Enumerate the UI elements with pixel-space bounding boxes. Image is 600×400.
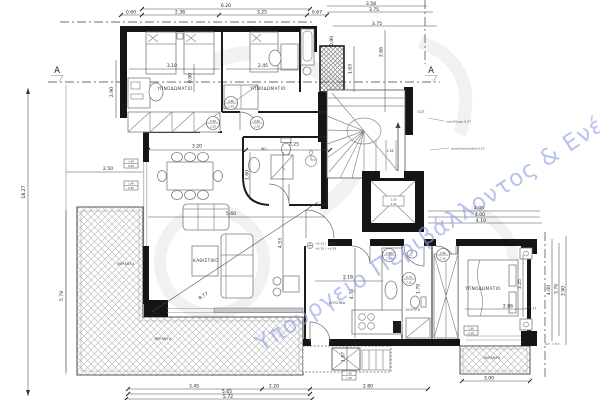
svg-text:1.40: 1.40 [128,160,134,164]
svg-text:0.90: 0.90 [228,99,234,103]
room-label-living: ΚΑΘΙΣΤΙΚΟ [193,258,219,263]
dim-right-017: 0.17 [530,307,537,311]
bedroom2-furniture [224,32,298,109]
door-tag: 0.752.10 [403,273,416,286]
window-tag: 1.400.90 [124,159,138,168]
dim-i-027: 0.27 [418,110,425,114]
elevator-tag: 1.20 2.20 [383,196,404,206]
dim-top-375a: 3.75 [369,7,379,13]
svg-text:1.10: 1.10 [346,376,352,380]
svg-text:0.90: 0.90 [440,251,446,255]
room-label-wc: WC [261,147,268,151]
svg-text:0.90: 0.90 [210,119,216,123]
door-tag: 0.902.20 [251,117,264,130]
svg-text:2.20: 2.20 [254,124,260,128]
dim-i-090a: 0.90 [188,73,194,83]
svg-text:1.40: 1.40 [128,182,134,186]
room-label-bedroom2: ΥΠΝΟΔΩΜΑΤΙΟ [249,86,286,91]
dim-i-090b: 0.90 [329,36,335,46]
dim-bottom-280: 2.80 [363,384,373,390]
dim-i-325b: 3.25 [517,279,523,289]
dim-i-167: 1.67 [341,352,347,362]
dim-left-290: 2.90 [109,87,115,97]
wheelchair-icon [306,151,317,167]
room-label-bedroom1: ΥΠΝΟΔΩΜΑΤΙΟ [156,86,193,91]
svg-text:0.90: 0.90 [128,186,134,190]
dim-i-453: 4.53 [278,238,284,248]
elevator-tag-h: 2.20 [391,202,397,206]
wc-fixtures [249,138,317,179]
dim-top-325: 3.25 [257,10,267,16]
dim-right-376: 3.76 [554,284,560,294]
dim-bottom-220: 2.20 [269,384,279,390]
level-mark: +6.15 / +6.25 +6.10 / +6.28 [307,242,336,251]
dim-bottom-300: 3.00 [484,376,494,382]
svg-text:0.75: 0.75 [406,275,412,279]
room-label-bedroom3: ΥΠΝΟΔΩΜΑΤΙΟ [464,286,501,291]
elevator: 1.20 2.20 [362,171,424,232]
window-tag: 1.601.10 [464,326,478,335]
dim-i-310: 3.10 [167,63,177,69]
dim-top-067: 0.67 [312,10,322,16]
floor-plan: 1.20 2.20 6.20 0.60 2.38 3.25 0.67 3.58 … [0,0,600,400]
dim-left-1827: 18.27 [21,185,27,198]
svg-text:0.90: 0.90 [254,119,260,123]
bedroom3-furniture [434,248,532,338]
dim-i-286: 2.86 [503,304,513,310]
dim-left-250: 2.50 [103,166,113,172]
elevator-tag-w: 1.20 [391,198,397,202]
dim-i-245: 2.45 [258,63,268,69]
room-label-veranda-right: ΒΕΡΑΝΤΑ [483,356,501,360]
svg-text:2.20: 2.20 [210,124,216,128]
svg-text:2.20: 2.20 [228,104,234,108]
dining-table [158,153,223,200]
section-marker-right: A [428,66,434,76]
dim-i-877: 8.77 [198,291,210,302]
dim-i-170: 1.70 [416,284,422,294]
svg-text:1.40: 1.40 [346,372,352,376]
level-1: +6.15 / +6.25 [315,242,336,246]
svg-text:2.10: 2.10 [440,256,446,260]
floor-plan-svg: 1.20 2.20 6.20 0.60 2.38 3.25 0.67 3.58 … [0,0,600,400]
dim-top-238: 2.38 [175,10,185,16]
window-tag: 1.401.10 [342,371,356,380]
window-tag: 1.400.90 [124,181,138,190]
room-label-veranda-bottom: ΒΕΡΑΝΤΑ [154,337,172,341]
door-tag: 0.902.20 [207,117,220,130]
veranda-right [460,346,530,374]
shaft [320,46,344,92]
dim-i-266: 2.66 [379,47,385,57]
dim-i-560: 5.60 [226,211,236,217]
dim-left-579: 5.79 [59,291,65,301]
dim-right-400c: 4.00 [546,285,552,295]
dim-top-060: 0.60 [126,10,136,16]
level-2: +6.10 / +6.28 [315,247,336,251]
room-label-veranda-left: ΒΕΡΑΝΤΑ [117,262,135,266]
svg-text:1.60: 1.60 [468,327,474,331]
dim-right-390: 3.90 [561,286,567,296]
stair-note-2: μεταλλική σκάλα 0.10 [451,147,485,151]
room-label-bathroom: ΛΟΥΤΡΟ [406,308,421,312]
section-marker-left: A [54,66,60,76]
dim-bottom-572: 5.72 [223,394,233,400]
boundary-line-label: Ο.Γ. = Ρ.Γ. [545,342,561,346]
svg-text:1.10: 1.10 [468,331,474,335]
dim-i-163: 1.63 [348,64,354,74]
dim-i-136: 1.36 [387,149,394,153]
dim-top-375b: 3.75 [372,21,382,27]
dim-bottom-345: 3.45 [189,384,199,390]
dim-i-320: 3.20 [192,144,202,150]
stair-note-1: κιγκλίδωμα 0.07 [446,120,471,124]
door-tag: 0.902.20 [225,97,238,110]
dim-top-620: 6.20 [221,3,231,9]
dim-i-160: 1.60 [245,170,251,180]
dim-i-325: 3.25 [289,142,299,148]
staircase [327,90,405,178]
svg-text:2.10: 2.10 [406,280,412,284]
dim-top-358: 3.58 [366,1,376,7]
svg-text:0.90: 0.90 [128,164,134,168]
door-tag: 0.902.10 [437,249,450,262]
section-markers: A A [51,66,437,82]
